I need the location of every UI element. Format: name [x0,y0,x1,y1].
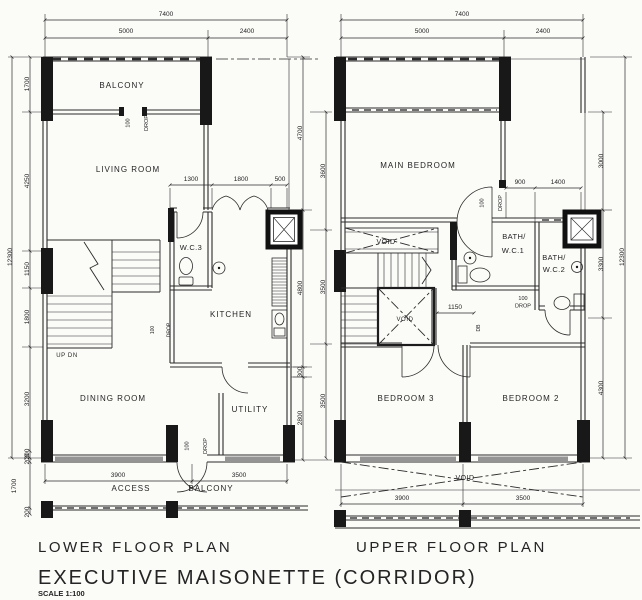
room-label-main-bedroom: MAIN BEDROOM [380,161,456,170]
upper-dim-landing: 1150 [437,304,474,313]
label-access-balcony: BALCONY [188,484,233,493]
room-label-utility: UTILITY [232,405,269,414]
dim-label: 2400 [240,28,255,35]
dim-label: 3300 [598,256,605,271]
dim-label: 7400 [455,11,470,18]
upper-plan-title: UPPER FLOOR PLAN [356,539,547,556]
lower-access-railing [41,501,308,518]
drawing-title: EXECUTIVE MAISONETTE (CORRIDOR) [38,567,477,589]
room-label-bath2: W.C.2 [543,265,565,274]
dim-label: 3600 [320,163,327,178]
dim-label: 1150 [24,262,31,276]
dim-label: 4250 [24,173,31,188]
room-label-living: LIVING ROOM [96,165,160,174]
dim-label: 4300 [598,380,605,395]
dim-label: 2400 [536,28,551,35]
dim-label: 12300 [619,248,626,266]
room-label-bedroom2: BEDROOM 2 [502,394,559,403]
lower-dim-left: 12300 1700 4250 1150 1800 3200 200 200 [7,57,43,517]
room-label-bedroom3: BEDROOM 3 [377,394,434,403]
upper-room-labels: MAIN BEDROOM BATH/ W.C.1 BATH/ W.C.2 BED… [377,161,566,403]
drop-label: DROP [515,304,531,310]
room-label-bath1: W.C.1 [502,246,524,255]
upper-lift-shaft [565,212,599,246]
lower-plan-title: LOWER FLOOR PLAN [38,539,232,556]
dim-label: 1400 [551,179,566,186]
dim-label: 1150 [448,304,462,311]
upper-dim-top: 7400 5000 2400 [341,11,583,57]
dim-label: 2800 [297,410,304,425]
dim-label: 3200 [24,391,31,406]
db-label: DB [476,324,482,332]
dim-label: 3500 [232,472,247,479]
lower-dim-top: 7400 5000 2400 [45,11,287,57]
toilet-symbol [458,266,467,283]
drop-label: 100 [518,296,527,302]
floorplan-sheet: 7400 5000 2400 12300 1700 4250 1150 1800… [0,0,642,600]
drop-label: 100 [185,441,191,450]
drop-label: DROP [498,195,504,211]
drop-label: DROP [167,322,173,337]
room-label-kitchen: KITCHEN [210,310,252,319]
dim-label: 200 [24,453,31,464]
drop-label: DROP [203,438,209,454]
dim-label: 300 [297,366,304,377]
toilet-symbol [180,258,193,275]
room-label-wc3: W.C.3 [180,243,202,252]
dim-label: 3000 [598,153,605,168]
void-label: VOID [376,239,395,246]
lower-lift-shaft [268,212,300,247]
upper-stairs [341,253,431,344]
upper-floor-plan: 7400 5000 2400 3000 3300 4300 12300 [334,11,640,528]
toilet-symbol [574,294,584,310]
label-access: ACCESS [112,484,151,493]
dim-label: 3900 [111,472,126,479]
lower-floor-plan: 7400 5000 2400 12300 1700 4250 1150 1800… [7,11,332,518]
dim-label: 4800 [297,280,304,295]
upper-void-railing [334,490,640,528]
dim-label: 1700 [24,76,31,91]
dim-label: 3500 [516,495,531,502]
titles: LOWER FLOOR PLAN UPPER FLOOR PLAN EXECUT… [38,539,547,598]
dim-label: 200 [24,506,31,517]
room-label-balcony: BALCONY [99,81,144,90]
lower-dim-right: 4700 4800 300 2800 3600 3500 3500 [287,57,332,460]
drop-label: DROP [144,115,150,131]
floorplan-drawing: 7400 5000 2400 12300 1700 4250 1150 1800… [0,0,642,600]
dim-label: 3500 [320,279,327,294]
dim-label: 5000 [119,28,134,35]
drop-label: 100 [126,118,132,127]
dim-label: 5000 [415,28,430,35]
drop-label: 100 [150,326,156,335]
dim-label: 900 [515,179,526,186]
upper-dim-bottom: 3900 3500 [341,464,583,507]
dim-label: 4700 [297,125,304,140]
room-label-bath2: BATH/ [542,253,566,262]
upper-doors [402,187,570,377]
lower-fixtures [179,258,287,339]
lower-stairs: UP DN [47,240,160,359]
void-label: VOID [455,475,474,482]
dim-label: 3500 [320,393,327,408]
dim-label: 1700 [11,478,18,493]
room-label-bath1: BATH/ [502,232,526,241]
drop-label: 100 [480,198,486,207]
dim-label: 1300 [184,176,199,183]
dim-label: 1800 [234,176,249,183]
lower-dim-bottom: 3900 3500 [45,464,287,484]
scale-label: SCALE 1:100 [38,589,85,598]
stairs-updn-label: UP DN [56,353,78,359]
dim-label: 1800 [24,309,31,324]
room-label-dining: DINING ROOM [80,394,146,403]
upper-dim-right: 3000 3300 4300 12300 [588,57,632,458]
dim-label: 7400 [159,11,174,18]
lower-dim-kitchen: 1300 1800 500 [170,176,287,208]
void-label: VOID [396,317,413,323]
dim-label: 3900 [395,495,410,502]
dim-label: 12300 [7,248,14,266]
dim-label: 500 [275,176,286,183]
